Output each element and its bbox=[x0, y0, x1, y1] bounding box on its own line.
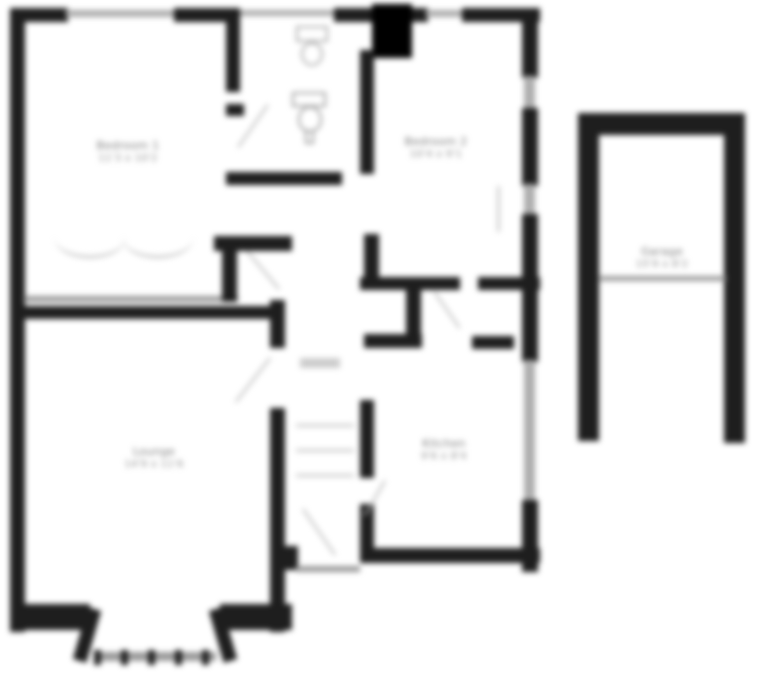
wall-hall-north bbox=[214, 236, 292, 251]
floorplan: Bedroom 1 11'3 x 10'2 Bedroom 2 10'4 x 9… bbox=[0, 0, 760, 680]
wall-right-a bbox=[522, 8, 538, 78]
radiator-mark bbox=[497, 186, 500, 232]
wall-kitchen-left-upper bbox=[360, 400, 374, 478]
floorplan-image: Bedroom 1 11'3 x 10'2 Bedroom 2 10'4 x 9… bbox=[0, 0, 760, 680]
front-door-threshold bbox=[296, 566, 360, 572]
wall-bathroom-right bbox=[360, 50, 374, 174]
wall-garage-right bbox=[724, 113, 745, 443]
room-dims: 14'9 x 11'6 bbox=[124, 458, 183, 471]
wall-right-b bbox=[522, 108, 538, 186]
room-name: Bedroom 2 bbox=[405, 135, 468, 148]
wall-lounge-right-upper bbox=[270, 300, 285, 348]
wardrobe-front-right bbox=[122, 216, 194, 258]
room-label-bedroom-1: Bedroom 1 11'3 x 10'2 bbox=[97, 139, 160, 165]
lounge-door-leaf bbox=[235, 357, 271, 402]
wall-lounge-right-lower bbox=[270, 408, 285, 632]
room-label-bedroom-2: Bedroom 2 10'4 x 9'1 bbox=[405, 135, 468, 161]
wall-left bbox=[10, 8, 25, 632]
wall-face-bedroom1-lounge bbox=[24, 296, 238, 302]
basin-bowl bbox=[298, 106, 322, 132]
bay-mullion-2 bbox=[121, 650, 128, 665]
window-bedroom2-top bbox=[426, 10, 464, 17]
wc-cistern bbox=[296, 26, 328, 42]
basin-shelf bbox=[292, 92, 326, 107]
garage-interior-line bbox=[600, 276, 726, 281]
wall-kitchen-bottom bbox=[360, 548, 540, 563]
bay-window-front bbox=[94, 652, 216, 661]
room-dims: 10'4 x 9'1 bbox=[405, 148, 468, 161]
wall-garage-left bbox=[578, 113, 599, 441]
bay-mullion-4 bbox=[175, 650, 182, 665]
room-dims: 15'9 x 8'2 bbox=[636, 258, 689, 271]
window-bathroom-top bbox=[234, 10, 336, 16]
bay-mullion-5 bbox=[202, 650, 209, 665]
stair-tread-1 bbox=[296, 424, 354, 427]
room-name: Lounge bbox=[124, 445, 183, 458]
wall-bedroom2-bottom-b bbox=[478, 277, 540, 290]
stair-tread-2 bbox=[296, 449, 354, 452]
wall-bathroom-bottom bbox=[226, 172, 342, 185]
basin-pedestal bbox=[305, 130, 314, 144]
stair-tread-3 bbox=[296, 474, 354, 477]
wall-hall-west bbox=[222, 250, 237, 302]
room-dims: 11'3 x 10'2 bbox=[97, 152, 160, 165]
window-bedroom2-right-2 bbox=[524, 184, 535, 216]
wall-frontdoor-pier bbox=[270, 546, 298, 570]
window-bedroom2-right-1 bbox=[524, 76, 535, 110]
wall-lobby-horizontal-a bbox=[364, 334, 422, 348]
front-door-leaf bbox=[302, 508, 336, 555]
wall-lobby-vertical bbox=[406, 288, 421, 336]
room-name: Garage bbox=[636, 245, 689, 258]
room-dims: 9'6 x 8'4 bbox=[421, 450, 467, 463]
room-label-lounge: Lounge 14'9 x 11'6 bbox=[124, 445, 183, 471]
wall-bathroom-left bbox=[226, 8, 240, 92]
window-bedroom1-top bbox=[66, 10, 176, 17]
wall-bathroom-left-stub bbox=[226, 104, 244, 116]
bay-mullion-1 bbox=[94, 650, 101, 665]
window-kitchen-right bbox=[524, 360, 535, 502]
bay-mullion-3 bbox=[148, 650, 155, 665]
room-label-kitchen: Kitchen 9'6 x 8'4 bbox=[421, 437, 467, 463]
bedroom1-door-leaf bbox=[246, 250, 280, 290]
wall-lounge-bottom-left bbox=[10, 604, 90, 630]
bedroom2-door-leaf bbox=[434, 291, 461, 328]
room-name: Bedroom 1 bbox=[97, 139, 160, 152]
wall-garage-top bbox=[578, 113, 745, 135]
room-name: Kitchen bbox=[421, 437, 467, 450]
wc-bowl bbox=[301, 42, 323, 66]
wardrobe-front-left bbox=[54, 216, 126, 258]
kitchen-door-leaf bbox=[364, 480, 386, 516]
wall-bedroom1-lounge bbox=[24, 306, 282, 319]
stair-mark bbox=[300, 358, 340, 368]
room-label-garage: Garage 15'9 x 8'2 bbox=[636, 245, 689, 271]
wall-lobby-horizontal-b bbox=[472, 336, 514, 349]
chimney-breast bbox=[372, 4, 412, 58]
